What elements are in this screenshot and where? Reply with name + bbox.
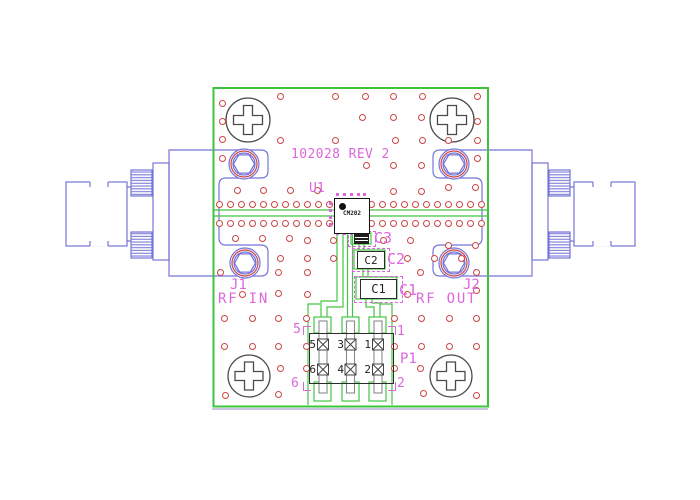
p1-silk-pin6: 6 — [291, 377, 299, 390]
p1-pin-number: 2 — [361, 364, 371, 375]
via — [227, 201, 234, 208]
via — [390, 114, 397, 121]
via — [277, 365, 284, 372]
via — [390, 201, 397, 208]
via — [418, 343, 425, 350]
via — [412, 220, 419, 227]
via — [332, 93, 339, 100]
via — [293, 201, 300, 208]
via — [232, 235, 239, 242]
via — [222, 392, 229, 399]
via — [445, 242, 452, 249]
via — [474, 93, 481, 100]
via — [260, 201, 267, 208]
via — [303, 315, 310, 322]
p1-header-body — [309, 333, 394, 384]
via — [227, 220, 234, 227]
via — [304, 255, 311, 262]
via — [249, 220, 256, 227]
via — [332, 137, 339, 144]
via — [458, 255, 465, 262]
p1-silk-pin5: 5 — [293, 323, 301, 336]
via — [219, 136, 226, 143]
u1-pad — [343, 193, 346, 196]
via — [286, 235, 293, 242]
via — [418, 114, 425, 121]
via — [445, 184, 452, 191]
via — [412, 201, 419, 208]
u1-pad — [329, 223, 332, 226]
via — [379, 220, 386, 227]
u1-pad — [350, 193, 353, 196]
u1-pin1-dot — [339, 203, 346, 210]
via — [456, 220, 463, 227]
via — [419, 93, 426, 100]
via — [275, 315, 282, 322]
p1-refdes-label: P1 — [400, 352, 417, 366]
c3-refdes-label: C3 — [374, 231, 392, 246]
via — [474, 118, 481, 125]
via — [217, 269, 224, 276]
via — [473, 392, 480, 399]
p1-pin-number: 6 — [306, 364, 316, 375]
c3-capacitor-body — [354, 234, 369, 244]
pcb-assembly-drawing: 102028 REV 2 U1 J1 RF IN J2 RF OUT C3 C2… — [0, 0, 700, 500]
j1-refdes-label: J1 — [230, 278, 247, 292]
via — [445, 201, 452, 208]
via — [390, 188, 397, 195]
via — [216, 201, 223, 208]
via — [456, 201, 463, 208]
via — [287, 187, 294, 194]
via-layer — [0, 0, 700, 500]
via — [275, 391, 282, 398]
via — [472, 242, 479, 249]
u1-pad — [329, 209, 332, 212]
via — [219, 155, 226, 162]
via — [418, 162, 425, 169]
via — [478, 201, 485, 208]
via — [219, 118, 226, 125]
u1-pad — [336, 193, 339, 196]
p1-pin-number: 5 — [306, 339, 316, 350]
u1-pad — [357, 193, 360, 196]
p1-silk-pin1: 1 — [397, 325, 405, 338]
via — [304, 220, 311, 227]
via — [275, 343, 282, 350]
via — [467, 201, 474, 208]
via — [379, 201, 386, 208]
via — [219, 100, 226, 107]
via — [282, 201, 289, 208]
via — [260, 187, 267, 194]
via — [407, 237, 414, 244]
via — [445, 220, 452, 227]
p1-silk-pin2: 2 — [397, 377, 405, 390]
via — [473, 343, 480, 350]
via — [473, 315, 480, 322]
via — [473, 269, 480, 276]
via — [363, 162, 370, 169]
via — [249, 315, 256, 322]
c2-capacitor-body: C2 — [357, 251, 385, 269]
via — [277, 93, 284, 100]
via — [304, 269, 311, 276]
via — [401, 201, 408, 208]
via — [271, 220, 278, 227]
via — [420, 390, 427, 397]
via — [304, 291, 311, 298]
via — [390, 220, 397, 227]
via — [271, 201, 278, 208]
c2-refdes-label: C2 — [387, 252, 405, 267]
via — [315, 201, 322, 208]
via — [216, 220, 223, 227]
rf-in-label: RF IN — [218, 292, 269, 306]
via — [391, 315, 398, 322]
j2-refdes-label: J2 — [463, 278, 480, 292]
via — [275, 290, 282, 297]
via — [304, 237, 311, 244]
via — [315, 220, 322, 227]
via — [474, 137, 481, 144]
via — [238, 201, 245, 208]
via — [445, 137, 452, 144]
via — [249, 201, 256, 208]
via — [275, 269, 282, 276]
via — [431, 255, 438, 262]
via — [221, 315, 228, 322]
via — [478, 220, 485, 227]
via — [259, 235, 266, 242]
via — [234, 187, 241, 194]
via — [392, 137, 399, 144]
via — [434, 201, 441, 208]
via — [401, 220, 408, 227]
via — [472, 184, 479, 191]
p1-pin-number: 3 — [334, 339, 344, 350]
via — [249, 343, 256, 350]
c1-refdes-label: C1 — [399, 283, 417, 298]
via — [359, 114, 366, 121]
via — [418, 188, 425, 195]
rf-out-label: RF OUT — [416, 292, 477, 306]
u1-pad — [329, 216, 332, 219]
via — [418, 315, 425, 322]
via — [330, 255, 337, 262]
via — [423, 220, 430, 227]
via — [330, 237, 337, 244]
u1-refdes-label: U1 — [309, 182, 325, 195]
u1-chip-marking: CM202 — [335, 210, 369, 217]
via — [467, 220, 474, 227]
via — [282, 220, 289, 227]
via — [260, 220, 267, 227]
via — [390, 93, 397, 100]
via — [446, 315, 453, 322]
via — [419, 137, 426, 144]
via — [423, 201, 430, 208]
u1-pad — [329, 202, 332, 205]
via — [362, 93, 369, 100]
c1-capacitor-body: C1 — [360, 279, 397, 299]
silkscreen-part-number: 102028 REV 2 — [291, 148, 390, 161]
p1-pin-number: 4 — [334, 364, 344, 375]
via — [417, 269, 424, 276]
u1-chip: CM202 — [334, 198, 370, 234]
via — [446, 343, 453, 350]
via — [390, 162, 397, 169]
via — [304, 201, 311, 208]
via — [293, 220, 300, 227]
u1-pad — [363, 193, 366, 196]
via — [434, 220, 441, 227]
via — [417, 365, 424, 372]
via — [277, 137, 284, 144]
via — [474, 155, 481, 162]
p1-pin-number: 1 — [361, 339, 371, 350]
via — [221, 343, 228, 350]
via — [238, 220, 245, 227]
via — [277, 255, 284, 262]
